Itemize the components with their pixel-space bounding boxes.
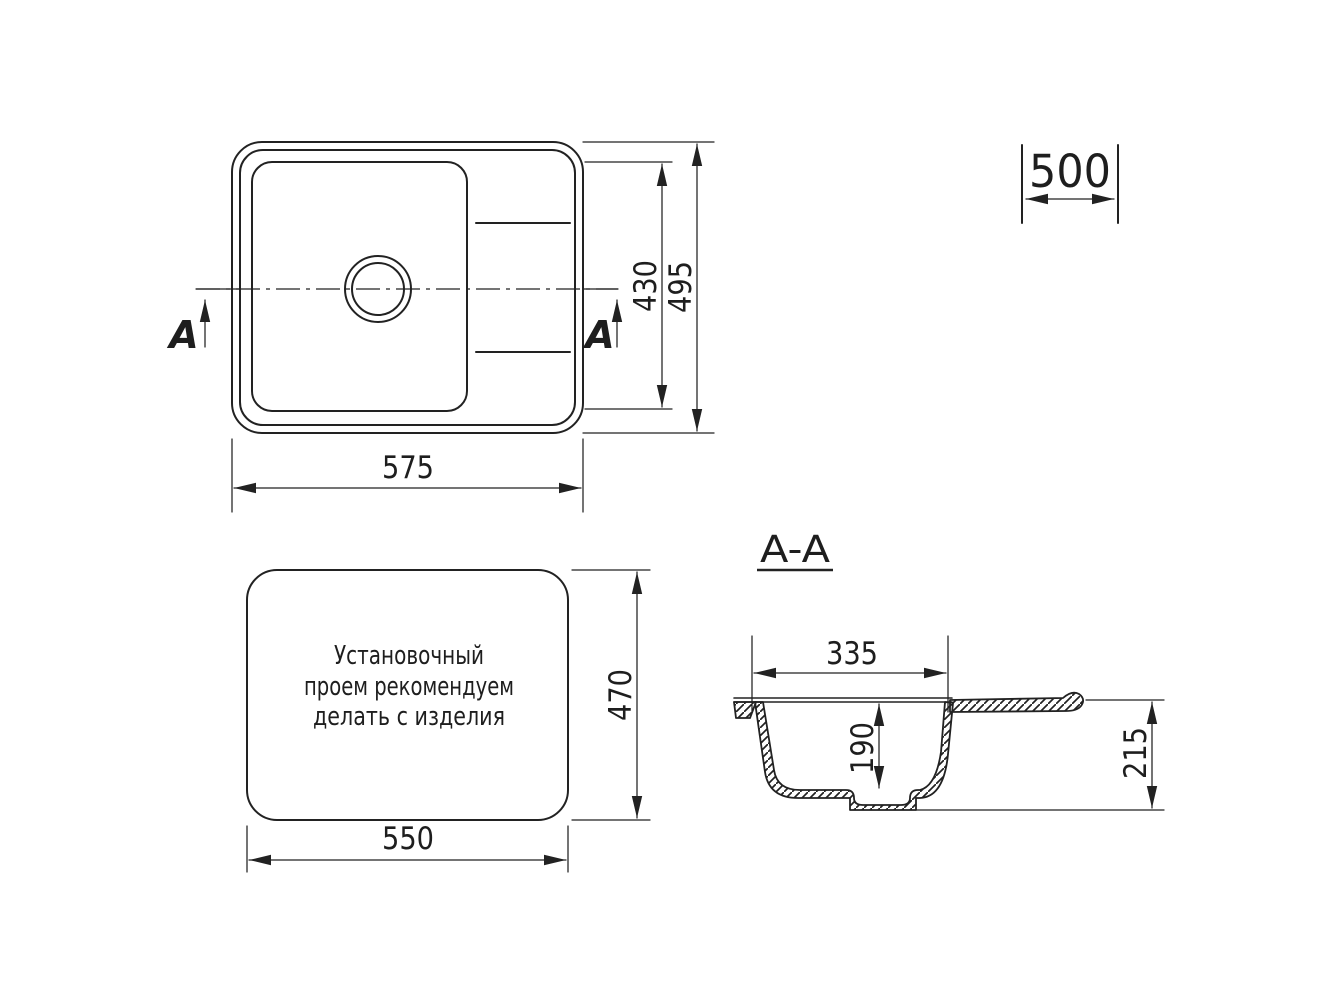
dim-550-label: 550 [382,821,434,857]
dim-575: 575 [232,439,583,512]
dim-430: 430 [585,162,672,409]
section-marker-left-label: A [166,313,198,357]
plan-bowl [252,162,467,411]
dim-335: 335 [752,636,948,712]
drainboard-ledge-section [950,693,1083,712]
dim-215: 215 [916,700,1164,810]
plan-inner-rim [240,150,575,425]
dim-550: 550 [247,821,568,872]
plan-outer-edge [232,142,583,433]
overall-depth-dimension: 500 [1022,145,1118,223]
cutout-note-line1: Установочный [334,641,484,671]
cutout-note-line3: делать с изделия [313,702,505,732]
dim-575-label: 575 [382,450,434,486]
dim-495-label: 495 [663,261,699,313]
dim-470: 470 [572,570,650,820]
dim-500-label: 500 [1029,145,1111,198]
dim-470-label: 470 [603,669,639,721]
section-view: A-A 335 190 215 [734,528,1164,810]
dim-190: 190 [845,704,881,788]
front-lip-section [734,702,756,718]
dim-335-label: 335 [826,636,878,672]
drawing-page: A A 575 430 495 500 У [0,0,1330,1000]
plan-view: A A 575 430 495 [166,142,714,512]
cutout-note-line2: проем рекомендуем [304,672,514,702]
section-title: A-A [760,528,830,571]
section-marker-right-label: A [582,313,614,357]
sink-technical-drawing: A A 575 430 495 500 У [0,0,1330,1000]
dim-215-label: 215 [1118,727,1154,779]
dim-430-label: 430 [628,260,664,312]
dim-190-label: 190 [845,722,881,774]
cutout-view: Установочный проем рекомендуем делать с … [247,570,650,872]
